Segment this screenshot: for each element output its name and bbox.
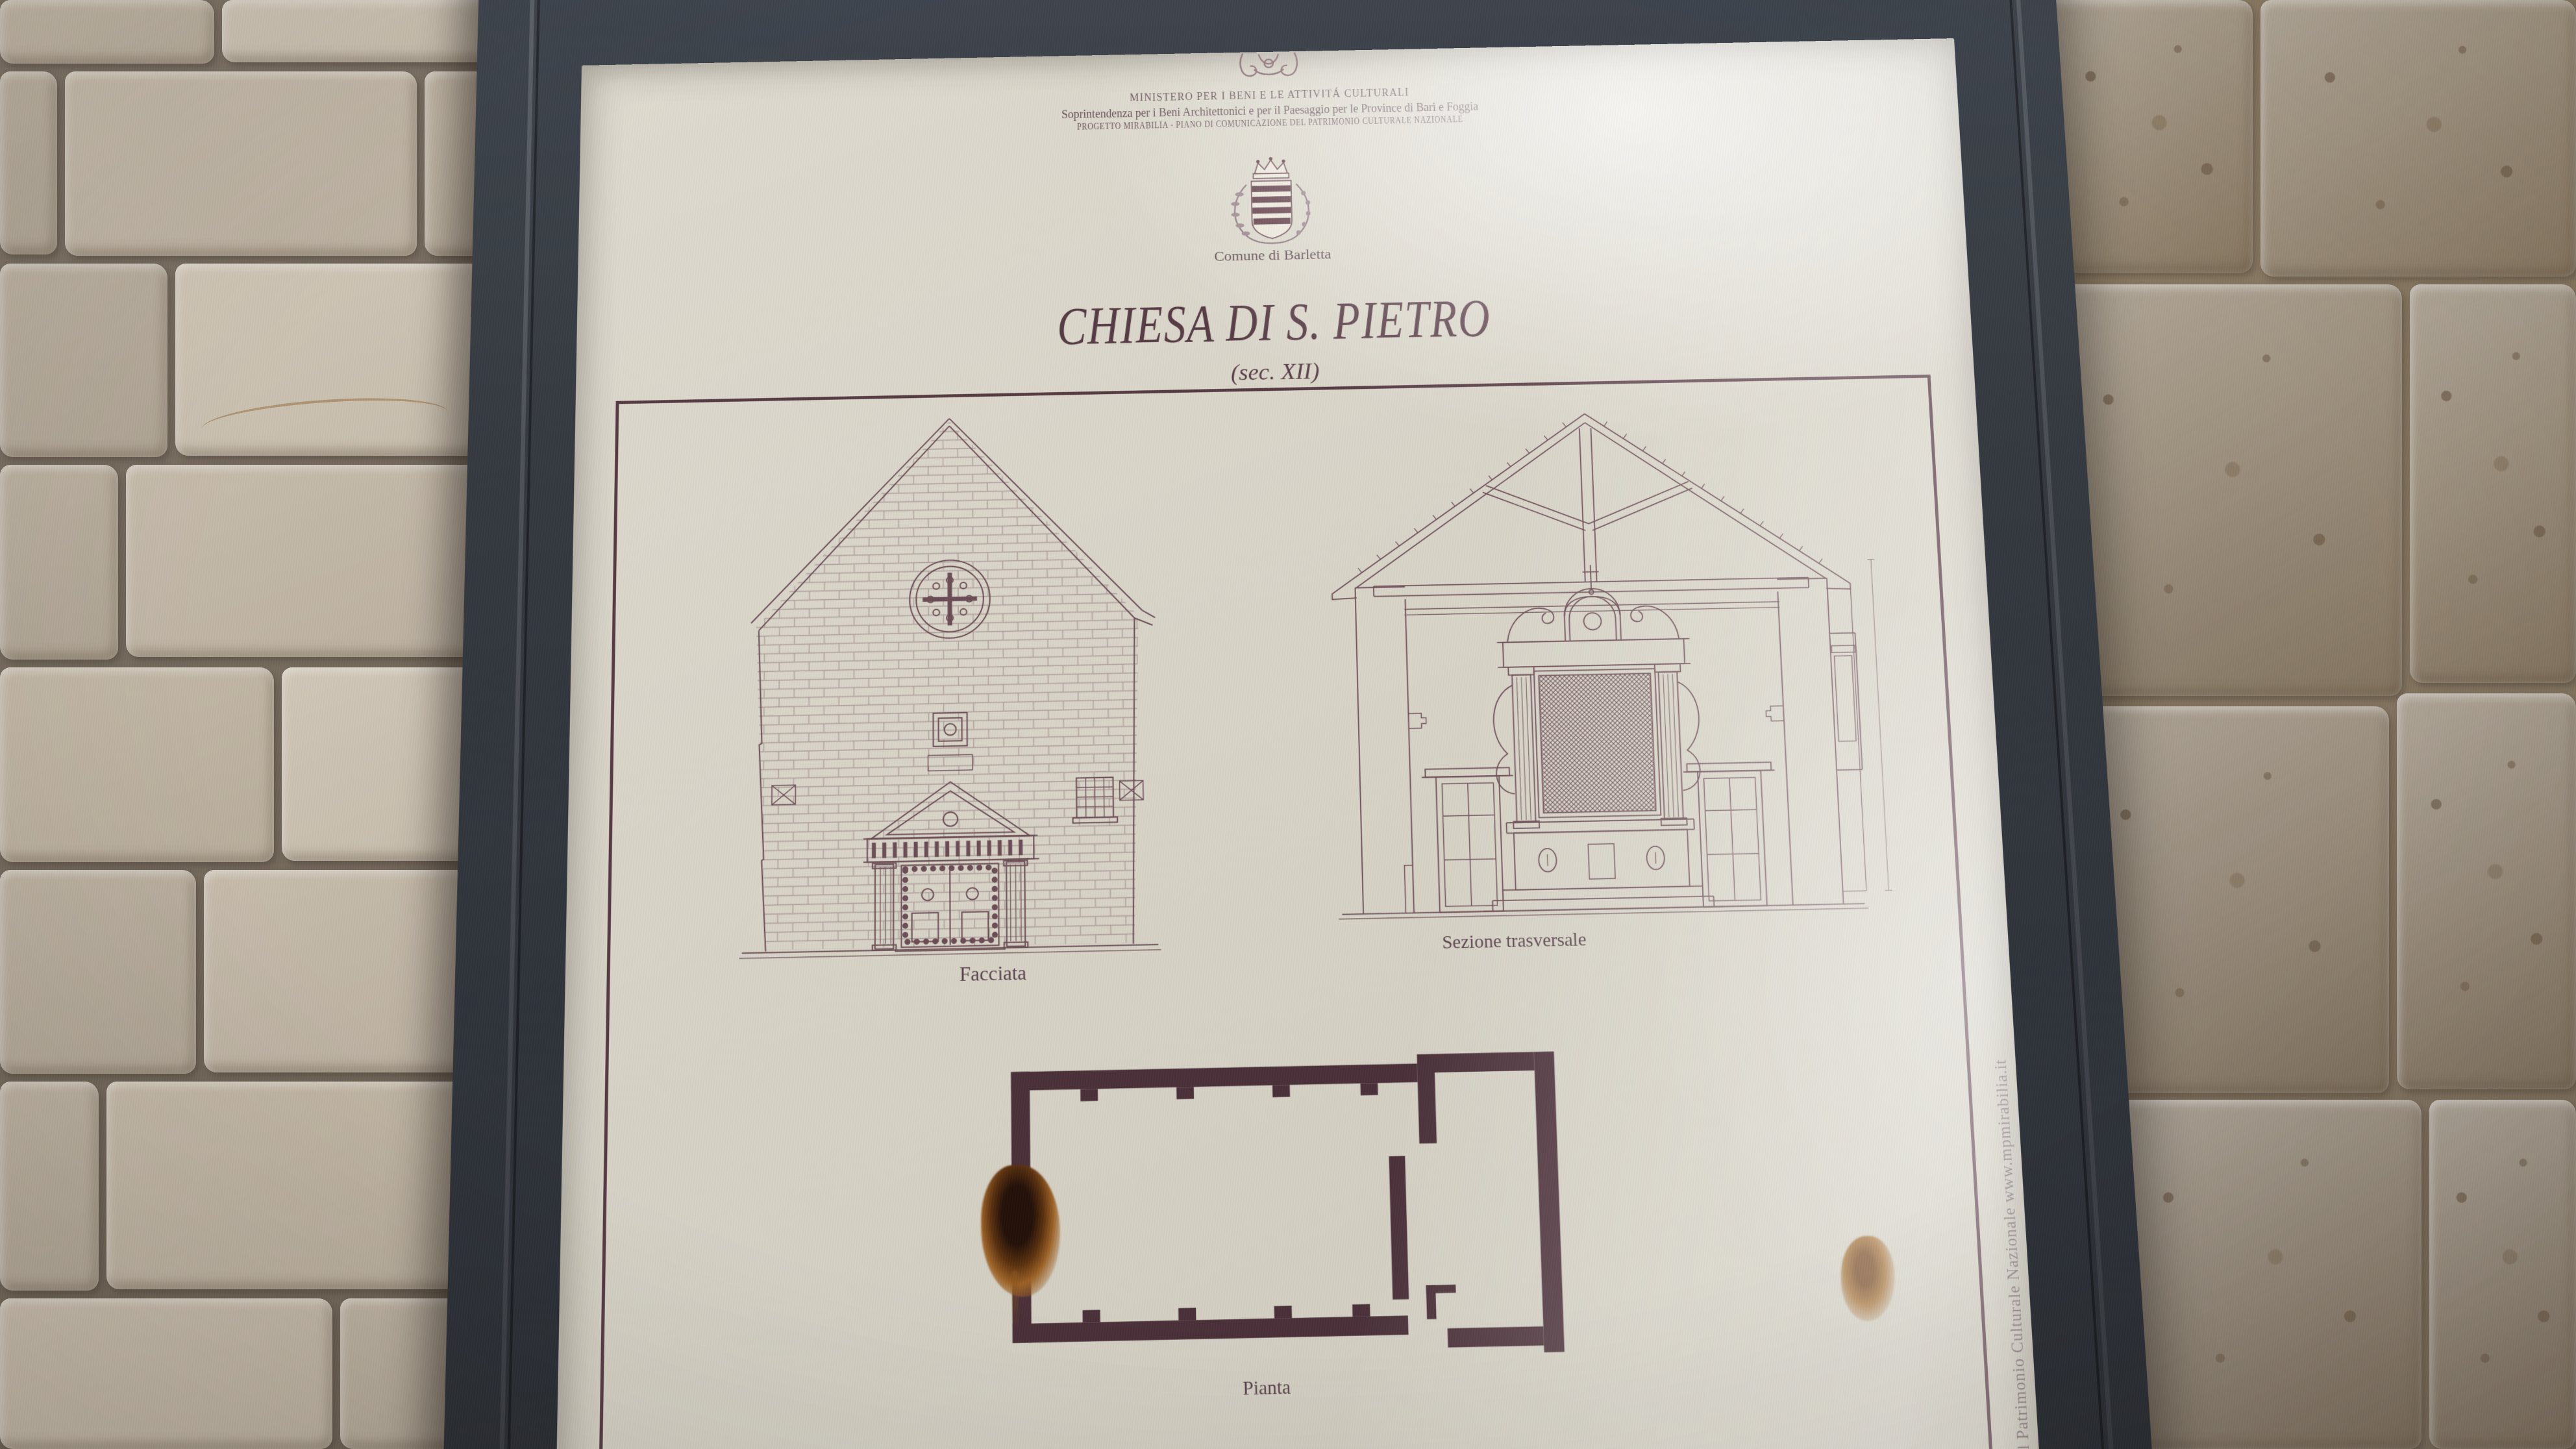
sign-paper: MINISTERO PER I BENI E LE ATTIVITÁ CULTU…	[549, 38, 2062, 1449]
stone-block	[0, 264, 167, 457]
stone-block	[2045, 0, 2253, 273]
section-figure: Sezione trasversale	[1298, 393, 1900, 956]
stone-block	[0, 0, 214, 64]
facade-drawing	[739, 410, 1161, 964]
stone-block	[106, 1082, 496, 1289]
plan-figure: Pianta	[987, 1041, 1585, 1406]
ministry-emblem-icon	[1232, 51, 1306, 86]
facade-figure: Facciata	[739, 410, 1161, 991]
stone-block	[2410, 284, 2576, 683]
information-sign: MINISTERO PER I BENI E LE ATTIVITÁ CULTU…	[434, 0, 2177, 1449]
coat-of-arms-icon	[1217, 155, 1326, 246]
stone-block	[2260, 0, 2576, 277]
stone-block	[0, 1298, 332, 1449]
stone-block	[2429, 1100, 2576, 1449]
stone-block	[0, 870, 196, 1074]
stone-block	[65, 71, 417, 256]
section-drawing	[1298, 393, 1898, 932]
stone-block	[0, 71, 57, 254]
plan-drawing	[987, 1041, 1584, 1377]
stone-block	[0, 1082, 99, 1291]
side-credit-caption: MIRABILIA s.r.l. Gestore del Piano di Co…	[1991, 1043, 2060, 1449]
stone-vein	[200, 391, 449, 450]
photo-scene: MINISTERO PER I BENI E LE ATTIVITÁ CULTU…	[0, 0, 2576, 1449]
stone-block	[2397, 693, 2576, 1089]
stone-block	[0, 667, 274, 862]
stone-block	[0, 465, 118, 660]
